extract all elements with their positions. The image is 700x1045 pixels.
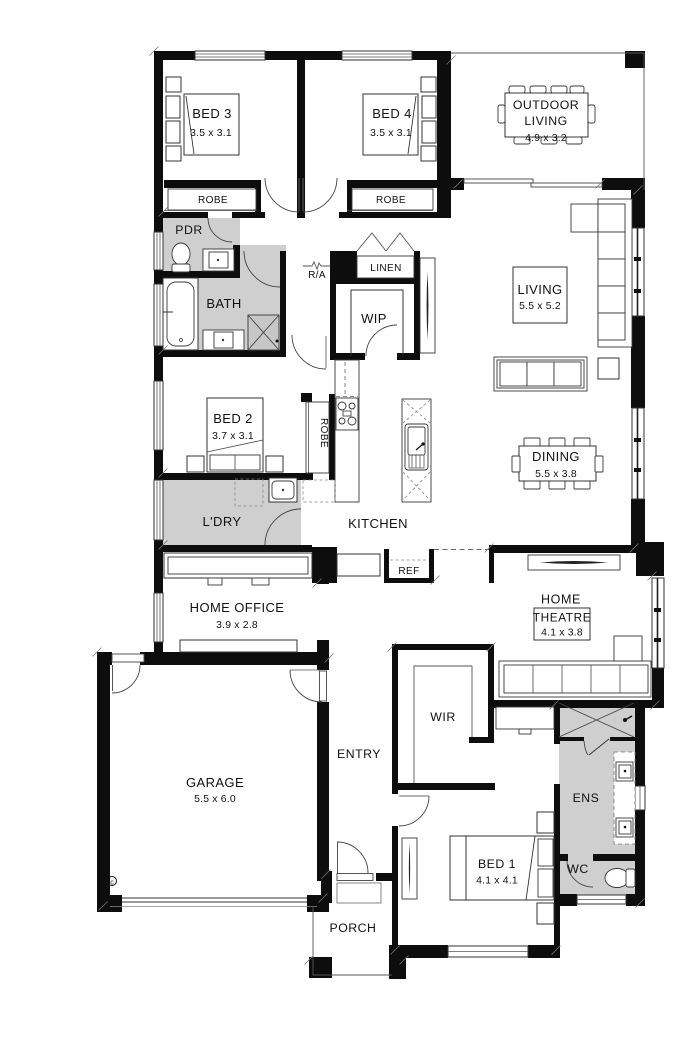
svg-text:WIR: WIR xyxy=(430,710,455,724)
svg-text:R/A: R/A xyxy=(308,270,326,281)
svg-text:5.5 x 6.0: 5.5 x 6.0 xyxy=(194,794,236,805)
svg-text:BED 4: BED 4 xyxy=(372,106,412,121)
svg-text:HOME: HOME xyxy=(541,593,581,607)
svg-text:ROBE: ROBE xyxy=(198,195,228,206)
svg-text:LIVING: LIVING xyxy=(517,282,562,297)
svg-text:BED 1: BED 1 xyxy=(478,857,516,871)
svg-text:ROBE: ROBE xyxy=(318,418,329,448)
svg-text:BED 2: BED 2 xyxy=(213,411,253,426)
svg-text:4.9 x 3.2: 4.9 x 3.2 xyxy=(525,133,567,144)
svg-text:ENTRY: ENTRY xyxy=(337,747,381,761)
svg-text:3.5 x 3.1: 3.5 x 3.1 xyxy=(190,128,232,139)
svg-text:5.5 x 5.2: 5.5 x 5.2 xyxy=(519,301,561,312)
svg-text:GARAGE: GARAGE xyxy=(186,775,244,790)
svg-text:5.5 x 3.8: 5.5 x 3.8 xyxy=(535,469,577,480)
svg-text:3.7 x 3.1: 3.7 x 3.1 xyxy=(212,431,254,442)
svg-text:4.1 x 4.1: 4.1 x 4.1 xyxy=(476,876,518,887)
svg-text:WC: WC xyxy=(567,862,589,876)
svg-text:3.9 x 2.8: 3.9 x 2.8 xyxy=(216,620,258,631)
svg-text:L'DRY: L'DRY xyxy=(203,514,242,529)
svg-text:THEATRE: THEATRE xyxy=(533,611,591,625)
svg-text:c: c xyxy=(110,880,114,887)
svg-text:PDR: PDR xyxy=(175,223,202,237)
svg-text:KITCHEN: KITCHEN xyxy=(348,516,408,531)
svg-text:WIP: WIP xyxy=(361,311,387,326)
svg-text:LIVING: LIVING xyxy=(524,114,567,128)
svg-text:PORCH: PORCH xyxy=(330,921,377,935)
svg-text:HOME OFFICE: HOME OFFICE xyxy=(190,600,285,615)
svg-text:LINEN: LINEN xyxy=(370,263,401,274)
svg-text:4.1 x 3.8: 4.1 x 3.8 xyxy=(541,628,583,639)
svg-text:OUTDOOR: OUTDOOR xyxy=(513,98,579,112)
svg-text:ENS: ENS xyxy=(573,791,600,805)
svg-text:ROBE: ROBE xyxy=(376,195,406,206)
svg-text:BATH: BATH xyxy=(206,296,241,311)
svg-text:REF: REF xyxy=(398,566,419,577)
svg-text:3.5 x 3.1: 3.5 x 3.1 xyxy=(370,128,412,139)
svg-text:DINING: DINING xyxy=(532,449,580,464)
svg-text:BED 3: BED 3 xyxy=(192,106,232,121)
